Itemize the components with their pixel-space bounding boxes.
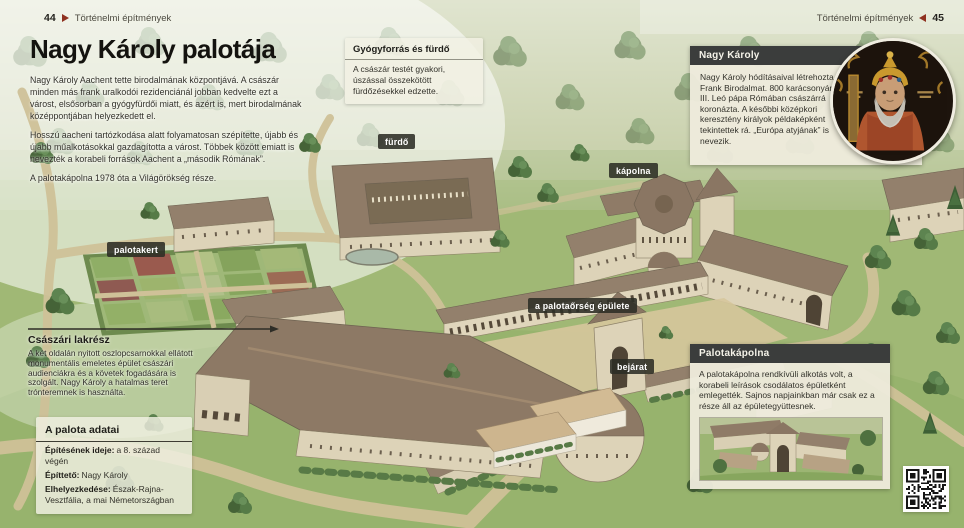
bath-info-box: Gyógyforrás és fürdő A császár testét gy…	[345, 38, 483, 104]
chapel-reconstruction-image	[699, 417, 883, 481]
small-building-nw	[168, 197, 274, 252]
charlemagne-portrait	[830, 38, 956, 164]
palace-facts-box: A palota adatai Építésének ideje:a 8. sz…	[36, 417, 192, 514]
article-paragraph-2: Hosszú aacheni tartózkodása alatt folyam…	[30, 129, 302, 165]
bath-box-body: A császár testét gyakori, úszással össze…	[345, 60, 483, 104]
page-number-left: 44	[44, 12, 56, 24]
section-title-right: Történelmi építmények	[817, 13, 914, 24]
imperial-title: Császári lakrész	[28, 334, 200, 346]
facts-box-title: A palota adatai	[36, 417, 192, 442]
palace-chapel-box: Palotakápolna A palotakápolna rendkívüli…	[690, 344, 890, 489]
chapel-box-title: Palotakápolna	[690, 344, 890, 363]
article-paragraph-1: Nagy Károly Aachent tette birodalmának k…	[30, 74, 302, 122]
arrow-right-icon	[62, 14, 69, 22]
bath-building	[332, 158, 500, 265]
page-number-right: 45	[932, 12, 944, 24]
page-header-right: Történelmi építmények 45	[817, 12, 944, 24]
facts-row-location: Elhelyezkedése:Észak-Rajna-Vesztfália, a…	[45, 484, 183, 506]
map-label-bejarat: bejárat	[610, 359, 654, 374]
book-spread: 44 Történelmi építmények Történelmi épít…	[0, 0, 964, 528]
arrow-left-icon	[919, 14, 926, 22]
qr-code	[903, 466, 949, 512]
page-header-left: 44 Történelmi építmények	[44, 12, 171, 24]
map-label-palotaorseg: a palotaőrség épülete	[528, 298, 637, 313]
article: Nagy Károly palotája Nagy Károly Aachent…	[30, 34, 302, 191]
chapel-box-body: A palotakápolna rendkívüli alkotás volt,…	[699, 369, 875, 411]
facts-row-built-by: Építtető:Nagy Károly	[45, 470, 183, 481]
imperial-caption: Császári lakrész A két oldalán nyitott o…	[28, 331, 200, 398]
map-label-kapolna: kápolna	[609, 163, 658, 178]
facts-row-built-when: Építésének ideje:a 8. század végén	[45, 445, 183, 467]
article-title: Nagy Károly palotája	[30, 34, 302, 65]
imperial-body: A két oldalán nyitott oszlopcsarnokkal e…	[28, 349, 200, 398]
map-label-palotakert: palotakert	[107, 242, 165, 257]
section-title-left: Történelmi építmények	[75, 13, 172, 24]
map-label-furdo: fürdő	[378, 134, 415, 149]
bath-box-title: Gyógyforrás és fürdő	[345, 38, 483, 60]
article-paragraph-3: A palotakápolna 1978 óta a Világörökség …	[30, 172, 302, 184]
